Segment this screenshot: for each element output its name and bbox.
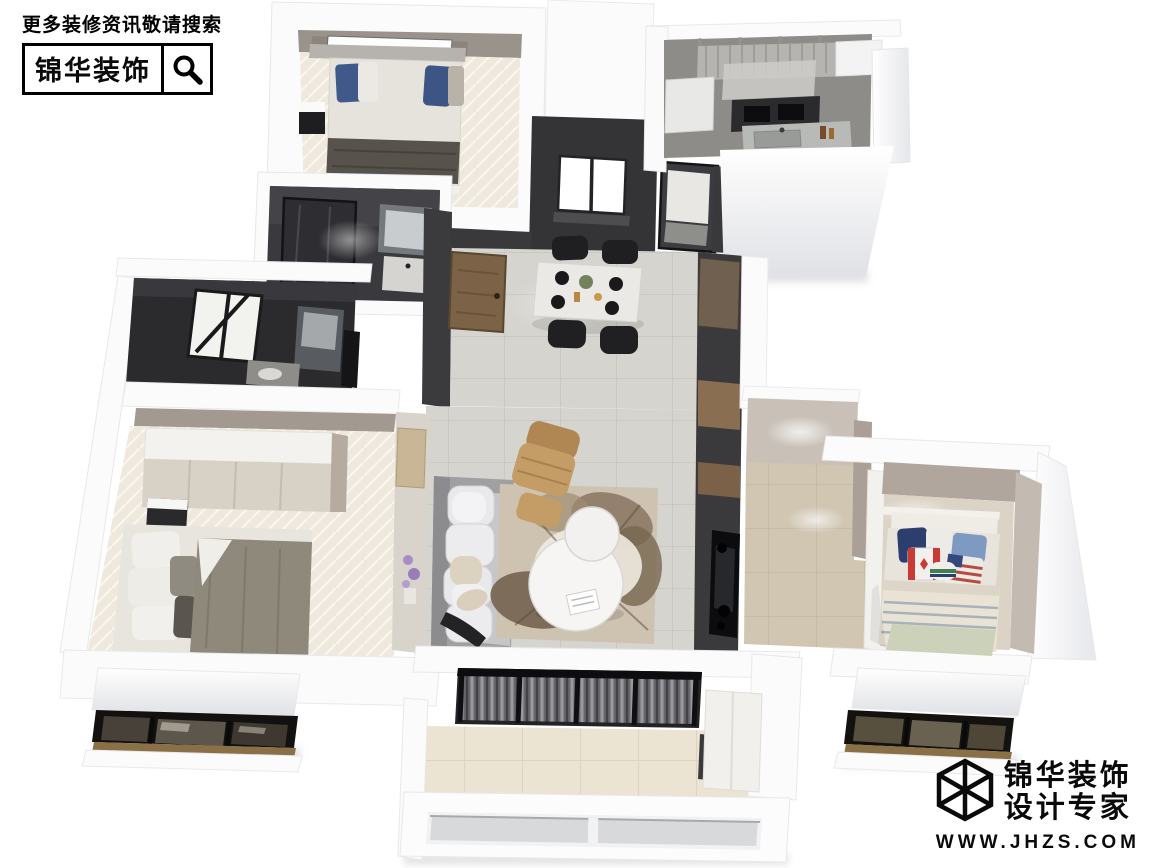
wall-slab-top-center [545,0,654,122]
entry-door [449,252,506,332]
balcony [398,646,802,862]
balcony-outer-wall [400,792,790,862]
master-bay-window [82,668,302,772]
watermark-search-hint: 更多装修资讯敬请搜索 锦华装饰 [22,10,222,95]
brand-name: 锦华装饰 [1004,761,1132,792]
tv-wall [694,252,744,654]
screenshot-root: 更多装修资讯敬请搜索 锦华装饰 锦华装饰 设计专家 WWW.JHZS.COM [0,0,1158,868]
watermark-tagline: 更多装修资讯敬请搜索 [22,10,222,37]
master-door [396,428,426,488]
wireframe-cube-icon [936,758,994,827]
floorplan-3d-render [0,0,1158,868]
hallway [742,386,890,652]
brand-logo-block: 锦华装饰 设计专家 WWW.JHZS.COM [936,758,1140,854]
striped-roll-pillow [930,562,956,580]
brand-tagline: 设计专家 [1004,793,1132,824]
master-bed [112,524,312,662]
kids-bed [870,512,1000,656]
master-corridor-wall [392,412,430,654]
search-icon [161,46,210,92]
kitchen-cabinet [665,77,714,133]
brand-website: WWW.JHZS.COM [936,832,1140,854]
balcony-sliding-doors [455,668,702,728]
master-bath-window [188,290,262,362]
balcony-cabinet [703,690,762,792]
kitchen-sink [754,130,801,148]
dining-table [533,262,642,322]
watermark-brand-name: 锦华装饰 [25,46,161,92]
brand-text: 锦华装饰 设计专家 [1004,761,1132,824]
bedroom-2-nightstand [299,102,325,134]
watermark-brand-box: 锦华装饰 [22,43,213,95]
